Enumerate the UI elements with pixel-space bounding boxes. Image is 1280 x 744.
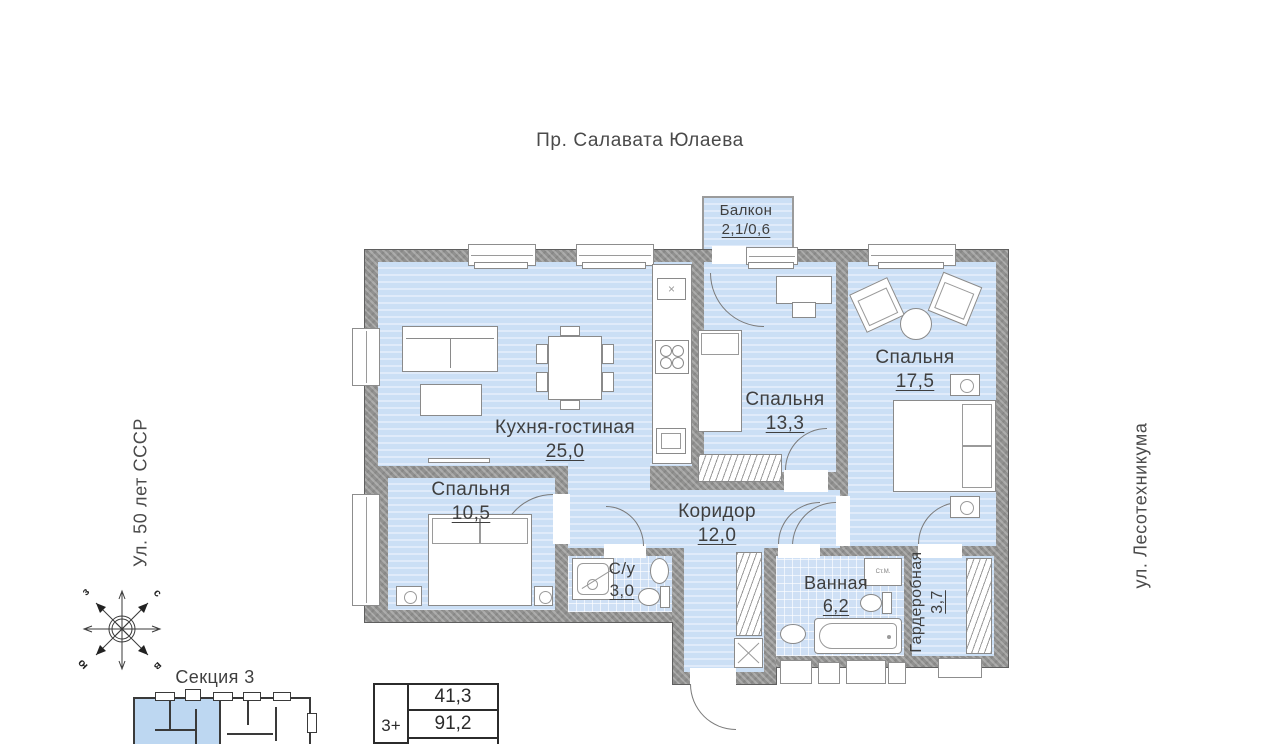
desk [776,276,832,304]
bedroom10-name: Спальня [401,478,541,502]
bedroom17-name: Спальня [843,346,987,370]
balcony-label: Балкон 2,1/0,6 [702,201,790,239]
street-left: Ул. 50 лет СССР [131,383,152,603]
wc-area: 3,0 [582,580,662,602]
chair [602,344,614,364]
section-plan-thumbnail [133,697,311,744]
door-opening-bedroom10 [553,494,570,544]
chair [536,344,548,364]
corridor-area: 12,0 [647,524,787,548]
coffee-table [420,384,482,416]
bedroom10-area: 10,5 [401,502,541,526]
vent-block [780,660,812,684]
wardrobe-cabinet [698,454,782,482]
living-area-value: 41,3 [435,686,472,708]
vent-block [846,660,886,684]
corridor-label: Коридор 12,0 [647,500,787,548]
entrance-door-arc [690,684,736,730]
double-bed [893,400,996,492]
corridor-name: Коридор [647,500,787,524]
flat-type-cell: 3+ [373,683,409,744]
extra-row-cell [407,737,499,744]
door-opening-balcony [712,246,746,264]
street-top: Пр. Салавата Юлаева [440,130,840,152]
total-area-value: 91,2 [435,713,472,735]
balcony-name: Балкон [702,201,790,220]
chair [560,400,580,410]
entry-cabinet [734,638,763,668]
double-bed [428,514,532,606]
chair [602,372,614,392]
desk-chair [792,302,816,318]
bath-sink [780,624,806,644]
wardrobe-shelves [966,558,992,654]
radiator [582,262,646,269]
kitchen-area: 25,0 [455,440,675,464]
bathtub [814,618,902,654]
perimeter-edge [672,622,673,685]
balcony-area: 2,1/0,6 [702,220,790,239]
kitchen-sink: × [657,278,686,300]
window [352,494,380,606]
dining-table [548,336,602,400]
bedroom17-area: 17,5 [843,370,987,394]
bathroom-label: Ванная 6,2 [774,572,898,618]
chair [536,372,548,392]
bedroom10-label: Спальня 10,5 [401,478,541,526]
flat-type: 3+ [381,716,400,736]
window [352,328,380,386]
wardrobe-label: Гардеробная 3,7 [906,532,950,672]
perimeter-edge [364,622,673,623]
bedroom13-area: 13,3 [713,412,857,436]
round-table [900,308,932,340]
vent-block [818,662,840,684]
perimeter-edge [1008,249,1009,668]
total-area-cell: 91,2 [407,709,499,739]
section-label-text: Секция 3 [175,667,254,687]
kitchen-label: Кухня-гостиная 25,0 [455,416,675,464]
compass-north: с [151,587,164,600]
sofa [402,326,498,372]
entry-closet [736,552,762,636]
bathroom-name: Ванная [774,572,898,595]
perimeter-edge [776,668,777,685]
bathroom-area: 6,2 [774,595,898,618]
nightstand [396,586,422,606]
street-right: ул. Лесотехникума [1131,386,1152,626]
compass-west: з [80,586,93,599]
vent-block [888,662,906,684]
radiator [748,262,794,269]
radiator [474,262,528,269]
living-area-cell: 41,3 [407,683,499,711]
wardrobe-name: Гардеробная [906,532,927,672]
section-label: Секция 3 [140,665,290,689]
nightstand [950,496,980,518]
radiator [878,262,944,269]
wc-name: С/у [582,558,662,580]
kitchen-name: Кухня-гостиная [455,416,675,440]
stove [655,340,689,374]
bedroom17-label: Спальня 17,5 [843,346,987,394]
compass-south: ю [75,657,90,672]
wardrobe-area: 3,7 [927,532,948,672]
cross-icon [735,639,762,667]
chair [560,326,580,336]
bedroom13-name: Спальня [713,388,857,412]
nightstand [534,586,553,606]
wc-label: С/у 3,0 [582,558,662,602]
door-opening-wc [604,544,646,558]
door-opening-bedroom13 [784,470,828,492]
floorplan-page: Пр. Салавата Юлаева Ул. 50 лет СССР ул. … [0,0,1280,744]
bedroom13-label: Спальня 13,3 [713,388,857,436]
door-opening-bedroom17 [836,496,850,546]
